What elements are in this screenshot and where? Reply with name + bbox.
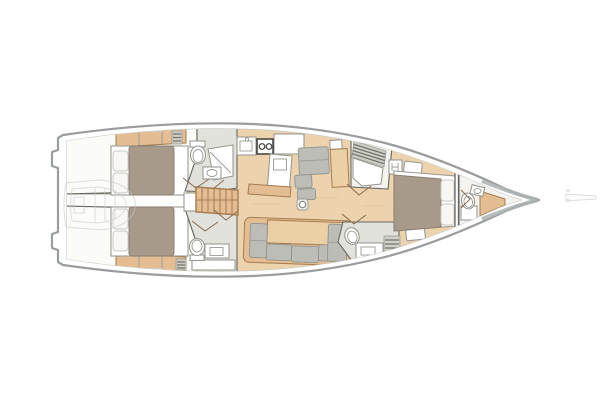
sofa-cushion-seat [266, 244, 292, 261]
settee-locker [330, 140, 342, 150]
bed-pillow [113, 151, 128, 171]
mast-step [297, 199, 308, 210]
bed-pillow [441, 180, 454, 201]
ac-grille [176, 259, 186, 270]
bowsprit [566, 189, 596, 202]
bow-fitting [566, 189, 569, 192]
island-bed [394, 171, 455, 231]
bed-aft-port [111, 146, 188, 195]
floor-plan-canvas [0, 0, 600, 400]
bed-pillow [113, 231, 128, 251]
bow-bulkhead [455, 168, 460, 232]
bow-fitting [566, 199, 569, 202]
galley-sink-unit [237, 137, 256, 155]
bowsprit-tube [566, 194, 596, 201]
toilet-aft-port [190, 141, 206, 164]
sofa-cushion-seat [291, 246, 319, 263]
cushion-seam [250, 240, 267, 241]
bed-pillow [441, 204, 454, 225]
toilet-aft-starboard [190, 239, 205, 261]
yacht-floor-plan [0, 0, 600, 400]
bed-duvet [129, 146, 174, 195]
cabinet-strip [192, 260, 235, 270]
ottoman [297, 188, 316, 200]
vent-grille-port [172, 131, 182, 144]
washbasin-top [203, 167, 221, 179]
bed-aft-starboard [111, 207, 188, 256]
interior [64, 124, 524, 276]
galley-stove [257, 139, 273, 154]
tender-garage-floor [64, 194, 184, 207]
settee-side-cushion [295, 174, 313, 188]
mast-circle [299, 201, 305, 207]
saloon [243, 217, 353, 266]
engine-hatch [184, 193, 196, 211]
bed-duvet [129, 207, 174, 256]
chart-table [330, 149, 349, 188]
